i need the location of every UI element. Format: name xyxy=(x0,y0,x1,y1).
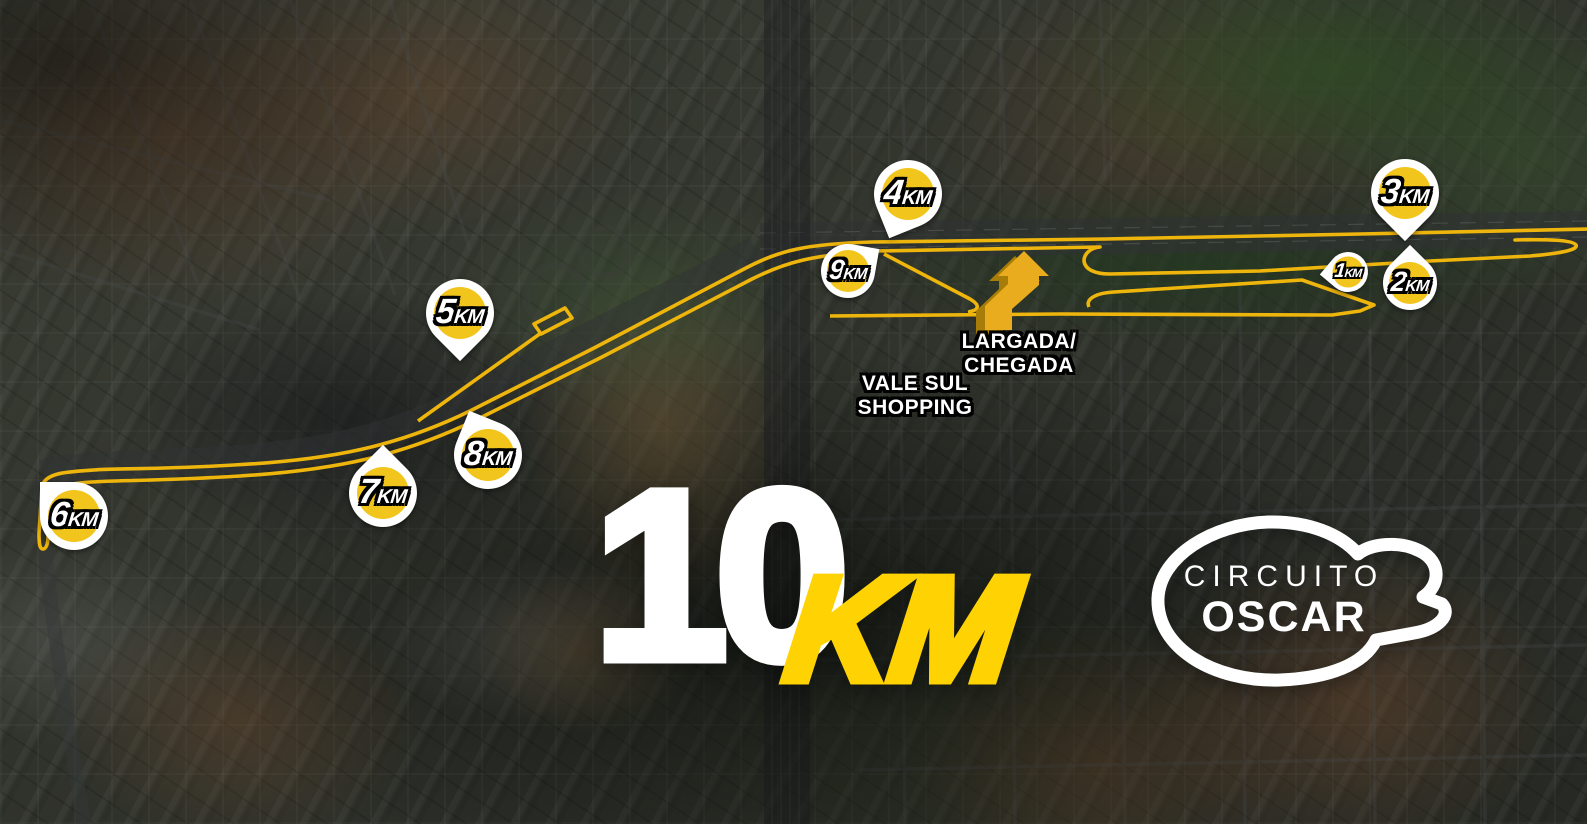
logo-line2: OSCAR xyxy=(1118,596,1450,639)
start-finish-line1: LARGADA/ xyxy=(869,330,1169,354)
race-course-map-poster: LARGADA/ CHEGADA VALE SUL SHOPPING 1KM 2… xyxy=(0,0,1587,824)
pin-label: 7KM xyxy=(357,474,408,509)
pin-label: 6KM xyxy=(48,497,99,532)
pin-label: 1KM xyxy=(1334,261,1363,281)
vale-sul-shopping-label: VALE SUL SHOPPING xyxy=(765,372,1065,419)
distance-unit: KM xyxy=(779,556,1023,704)
landmark-line1: VALE SUL xyxy=(765,372,1065,396)
pin-label: 8KM xyxy=(462,436,513,471)
pin-label: 2KM xyxy=(1390,268,1430,296)
start-finish-label: LARGADA/ CHEGADA xyxy=(869,330,1169,377)
pin-label: 5KM xyxy=(434,294,485,329)
pin-label: 9KM xyxy=(828,256,868,284)
logo-line1: CIRCUITO xyxy=(1118,562,1450,592)
circuito-oscar-logo: CIRCUITO OSCAR xyxy=(1118,506,1458,706)
pin-label: 3KM xyxy=(1379,174,1430,209)
landmark-line2: SHOPPING xyxy=(765,396,1065,420)
pin-label: 4KM xyxy=(882,175,933,210)
